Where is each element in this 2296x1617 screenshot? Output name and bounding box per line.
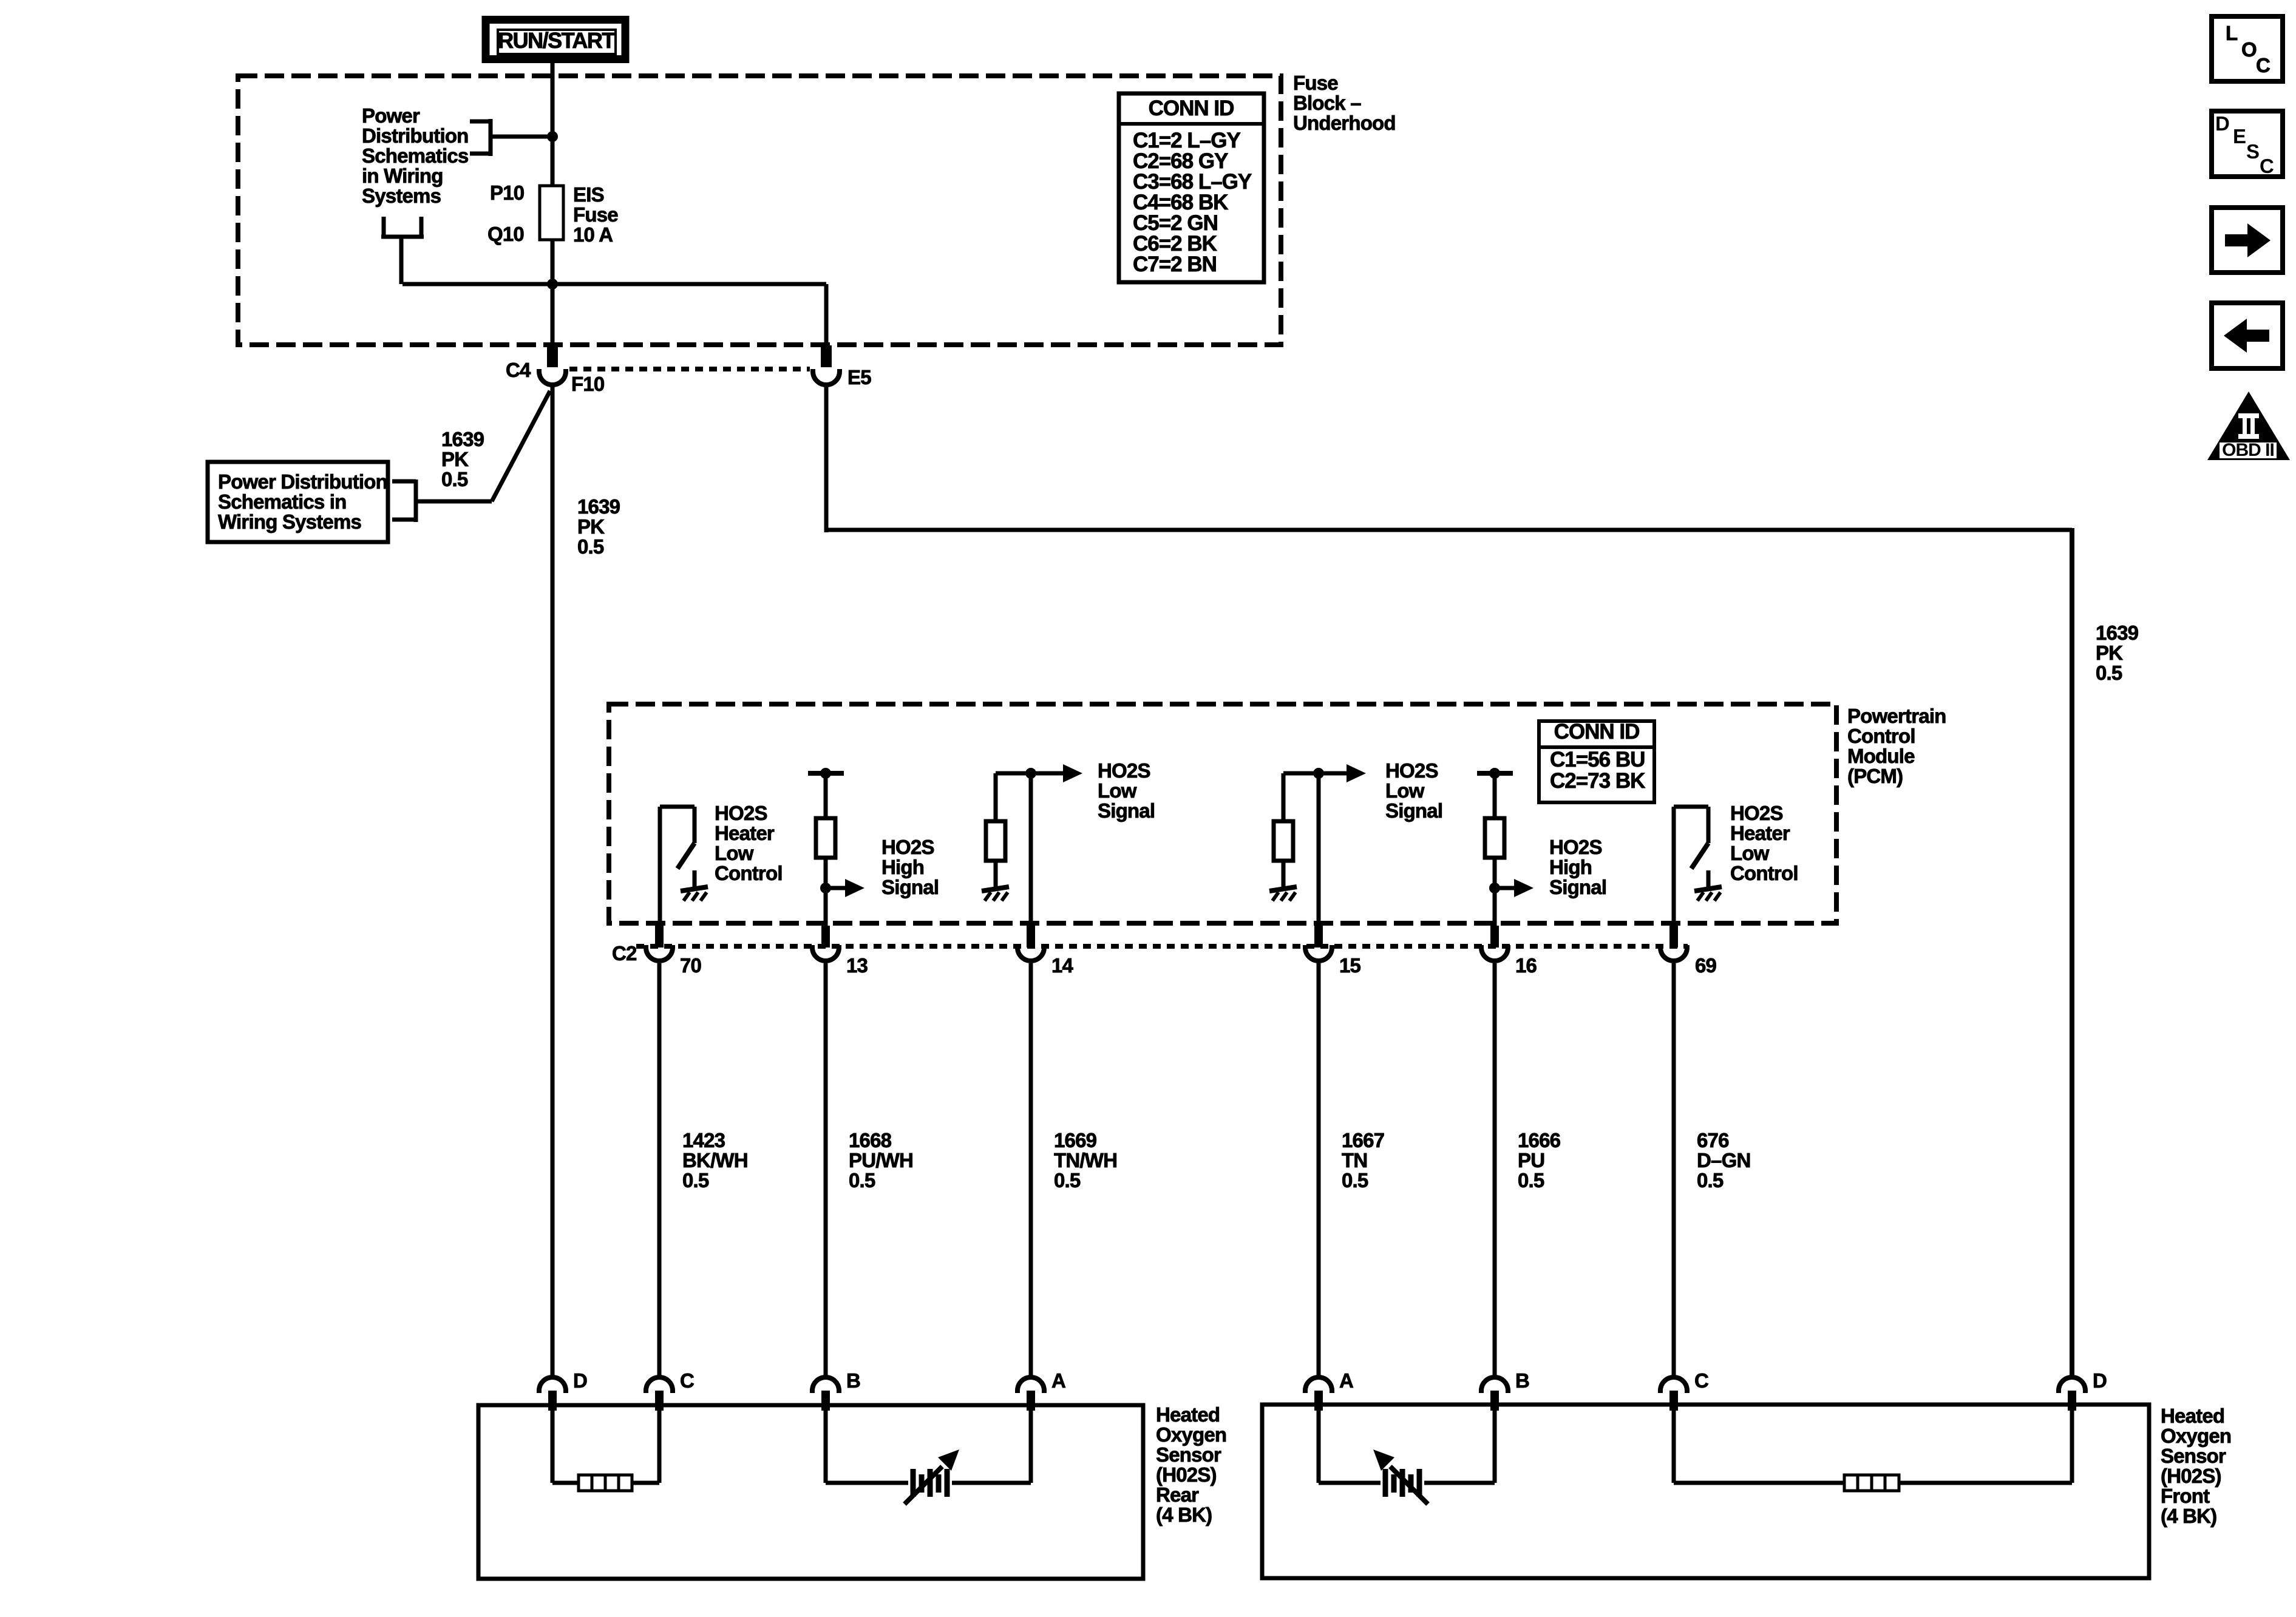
- svg-text:B: B: [846, 1369, 860, 1392]
- svg-text:B: B: [1515, 1369, 1529, 1392]
- svg-text:TN: TN: [1342, 1149, 1367, 1171]
- svg-text:Powertrain: Powertrain: [1847, 705, 1946, 727]
- svg-text:Sensor: Sensor: [1156, 1443, 1221, 1466]
- svg-text:Low: Low: [1098, 779, 1137, 802]
- svg-text:D–GN: D–GN: [1697, 1149, 1751, 1171]
- svg-text:Schematics in: Schematics in: [218, 490, 347, 513]
- svg-text:Control: Control: [1847, 725, 1915, 747]
- svg-text:10 A: 10 A: [573, 223, 613, 246]
- svg-text:70: 70: [680, 954, 701, 977]
- svg-text:Low: Low: [715, 842, 754, 864]
- svg-text:1666: 1666: [1518, 1129, 1561, 1151]
- svg-text:Signal: Signal: [881, 876, 939, 898]
- svg-text:High: High: [881, 856, 924, 878]
- svg-text:BK/WH: BK/WH: [682, 1149, 748, 1171]
- svg-text:1639: 1639: [577, 495, 620, 518]
- svg-text:1423: 1423: [682, 1129, 725, 1151]
- svg-text:0.5: 0.5: [1054, 1169, 1081, 1192]
- svg-text:0.5: 0.5: [2096, 662, 2122, 684]
- svg-text:PU: PU: [1518, 1149, 1544, 1171]
- svg-text:A: A: [1051, 1369, 1065, 1392]
- svg-text:Oxygen: Oxygen: [1156, 1423, 1226, 1446]
- svg-text:HO2S: HO2S: [1385, 759, 1438, 782]
- svg-text:(H02S): (H02S): [1156, 1463, 1217, 1486]
- svg-text:PK: PK: [577, 515, 605, 538]
- svg-text:Q10: Q10: [487, 223, 524, 245]
- svg-text:Heated: Heated: [1156, 1403, 1220, 1426]
- svg-text:Control: Control: [715, 862, 783, 884]
- svg-text:(PCM): (PCM): [1847, 765, 1903, 787]
- svg-text:Fuse: Fuse: [1293, 72, 1338, 94]
- svg-text:HO2S: HO2S: [1549, 836, 1602, 858]
- svg-text:HO2S: HO2S: [1098, 759, 1150, 782]
- svg-text:C2: C2: [612, 942, 637, 964]
- svg-text:0.5: 0.5: [441, 468, 468, 490]
- svg-text:Wiring Systems: Wiring Systems: [218, 510, 361, 533]
- svg-text:PK: PK: [2096, 642, 2123, 664]
- svg-text:(4 BK): (4 BK): [1156, 1503, 1212, 1526]
- svg-text:Systems: Systems: [362, 185, 441, 207]
- svg-text:HO2S: HO2S: [715, 802, 767, 824]
- svg-text:D: D: [573, 1369, 587, 1392]
- svg-text:Low: Low: [1730, 842, 1770, 864]
- svg-text:Oxygen: Oxygen: [2161, 1425, 2231, 1447]
- svg-text:Fuse: Fuse: [573, 203, 618, 226]
- svg-text:Distribution: Distribution: [362, 124, 469, 147]
- svg-text:C2=73 BK: C2=73 BK: [1550, 769, 1645, 793]
- svg-text:0.5: 0.5: [849, 1169, 875, 1192]
- svg-text:Block –: Block –: [1293, 92, 1361, 114]
- svg-text:A: A: [1339, 1369, 1353, 1392]
- svg-text:HO2S: HO2S: [881, 836, 934, 858]
- svg-text:C4: C4: [506, 359, 531, 381]
- svg-text:PK: PK: [441, 448, 469, 470]
- svg-text:1639: 1639: [2096, 622, 2139, 644]
- svg-text:13: 13: [846, 954, 868, 977]
- svg-text:(H02S): (H02S): [2161, 1465, 2221, 1487]
- svg-text:D: D: [2215, 112, 2230, 135]
- svg-text:Low: Low: [1385, 779, 1425, 802]
- svg-text:0.5: 0.5: [1518, 1169, 1544, 1192]
- svg-text:1667: 1667: [1342, 1129, 1384, 1151]
- svg-text:15: 15: [1339, 954, 1361, 977]
- svg-text:C7=2 BN: C7=2 BN: [1133, 253, 1217, 276]
- svg-text:S: S: [2246, 140, 2260, 163]
- svg-text:PU/WH: PU/WH: [849, 1149, 913, 1171]
- svg-text:Signal: Signal: [1098, 799, 1155, 822]
- svg-text:Heater: Heater: [715, 822, 775, 844]
- svg-text:C: C: [2256, 54, 2270, 76]
- svg-text:676: 676: [1697, 1129, 1729, 1151]
- svg-text:Sensor: Sensor: [2161, 1445, 2226, 1467]
- svg-text:CONN ID: CONN ID: [1554, 720, 1640, 744]
- svg-text:1668: 1668: [849, 1129, 892, 1151]
- svg-text:1639: 1639: [441, 428, 484, 450]
- svg-text:0.5: 0.5: [682, 1169, 709, 1192]
- svg-text:0.5: 0.5: [1697, 1169, 1724, 1192]
- svg-text:C: C: [2260, 155, 2274, 177]
- svg-text:0.5: 0.5: [1342, 1169, 1368, 1192]
- svg-text:Underhood: Underhood: [1293, 112, 1396, 134]
- svg-text:16: 16: [1515, 954, 1537, 977]
- svg-text:Control: Control: [1730, 862, 1798, 884]
- svg-text:Front: Front: [2161, 1485, 2210, 1507]
- svg-text:0.5: 0.5: [577, 535, 604, 558]
- svg-text:C: C: [1694, 1369, 1708, 1392]
- svg-text:High: High: [1549, 856, 1592, 878]
- svg-text:L: L: [2226, 22, 2238, 44]
- svg-text:in Wiring: in Wiring: [362, 164, 443, 187]
- svg-text:CONN ID: CONN ID: [1149, 97, 1234, 120]
- svg-text:Signal: Signal: [1549, 876, 1606, 898]
- svg-text:C1=56 BU: C1=56 BU: [1550, 748, 1645, 771]
- svg-text:Signal: Signal: [1385, 799, 1442, 822]
- svg-text:1669: 1669: [1054, 1129, 1097, 1151]
- svg-text:HO2S: HO2S: [1730, 802, 1783, 824]
- svg-text:Power Distribution: Power Distribution: [218, 470, 387, 493]
- svg-text:D: D: [2093, 1369, 2107, 1392]
- svg-text:Module: Module: [1847, 745, 1915, 767]
- svg-text:EIS: EIS: [573, 183, 604, 206]
- svg-text:E: E: [2233, 125, 2246, 147]
- svg-text:Power: Power: [362, 104, 420, 127]
- svg-text:RUN/START: RUN/START: [498, 28, 615, 53]
- svg-text:C: C: [680, 1369, 694, 1392]
- svg-text:F10: F10: [571, 373, 604, 395]
- svg-text:E5: E5: [847, 366, 871, 388]
- svg-text:Schematics: Schematics: [362, 144, 468, 167]
- svg-text:P10: P10: [490, 181, 524, 204]
- svg-text:TN/WH: TN/WH: [1054, 1149, 1117, 1171]
- svg-text:14: 14: [1051, 954, 1074, 977]
- svg-text:69: 69: [1695, 954, 1717, 977]
- svg-text:O: O: [2241, 38, 2257, 61]
- svg-text:Heated: Heated: [2161, 1405, 2224, 1427]
- svg-text:(4 BK): (4 BK): [2161, 1505, 2216, 1527]
- svg-text:OBD II: OBD II: [2222, 440, 2274, 460]
- svg-text:Heater: Heater: [1730, 822, 1790, 844]
- svg-text:Rear: Rear: [1156, 1483, 1199, 1506]
